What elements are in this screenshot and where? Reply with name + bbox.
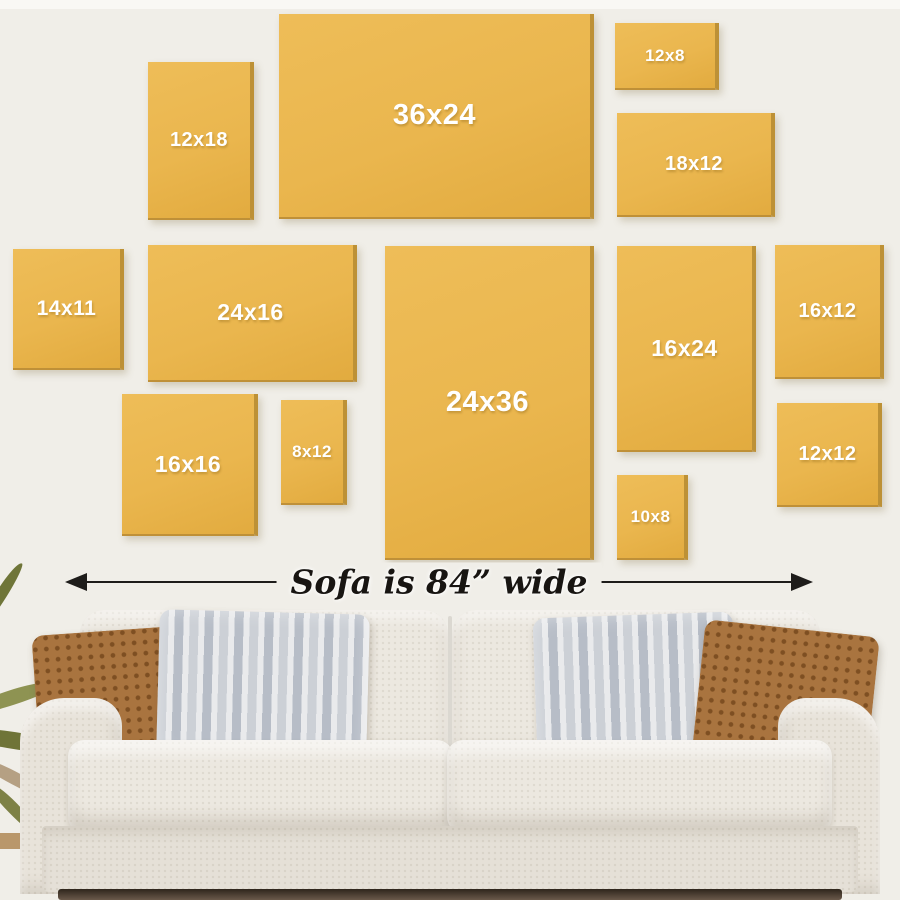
sofa-seat-cushion-right — [447, 740, 832, 836]
sofa-base — [42, 826, 858, 892]
size-comparison-infographic: 12x1836x2412x818x1214x1124x1624x3616x241… — [0, 0, 900, 900]
throw-pillow-grey-left — [156, 609, 370, 759]
sofa-seat-cushion-left — [68, 740, 453, 836]
sofa-photo — [0, 0, 900, 900]
floor-item — [0, 833, 22, 849]
sofa-back-seam — [448, 616, 452, 756]
plant-leaf-icon — [0, 560, 26, 627]
floor-shadow — [58, 889, 842, 900]
